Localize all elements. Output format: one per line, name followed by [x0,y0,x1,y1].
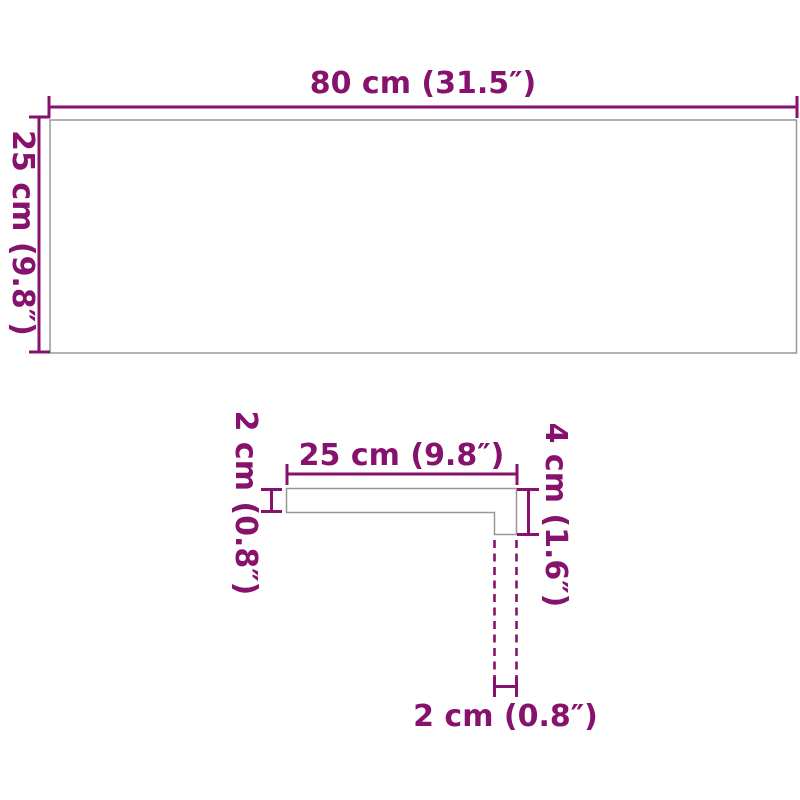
tread-thickness-label: 2 cm (0.8″) [227,303,263,703]
diagram-linework [0,0,800,800]
nose-height-label: 4 cm (1.6″) [537,315,573,715]
nose-width-label: 2 cm (0.8″) [355,699,656,735]
panel-width-label: 80 cm (31.5″) [49,66,797,102]
panel-outline [50,120,797,353]
panel-height-label: 25 cm (9.8″) [4,33,40,433]
profile-outline [287,489,517,535]
tread-width-label: 25 cm (9.8″) [286,438,517,474]
dimension-diagram: 80 cm (31.5″) 25 cm (9.8″) 25 cm (9.8″) … [0,0,800,800]
